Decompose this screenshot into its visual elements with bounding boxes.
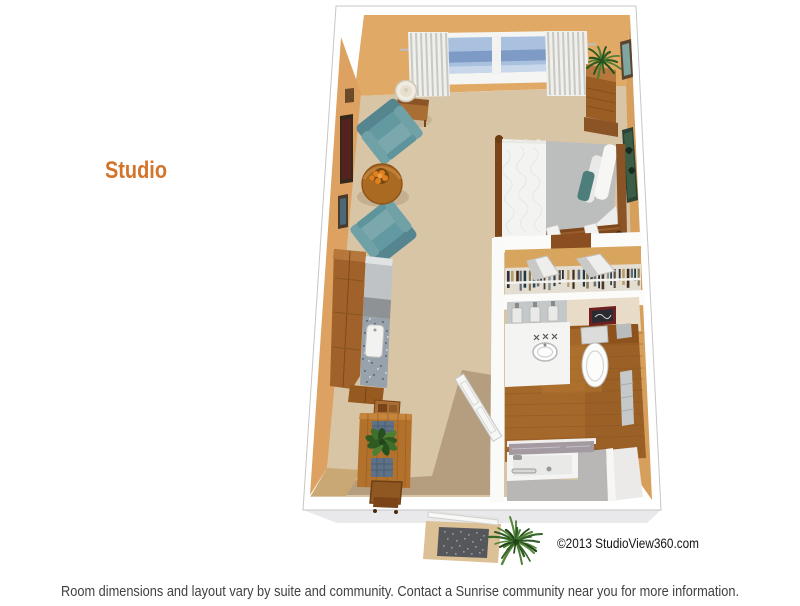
- svg-text:©2013 StudioView360.com: ©2013 StudioView360.com: [557, 536, 699, 551]
- svg-text:Room dimensions and layout var: Room dimensions and layout vary by suite…: [61, 584, 739, 600]
- svg-text:Studio: Studio: [105, 157, 167, 184]
